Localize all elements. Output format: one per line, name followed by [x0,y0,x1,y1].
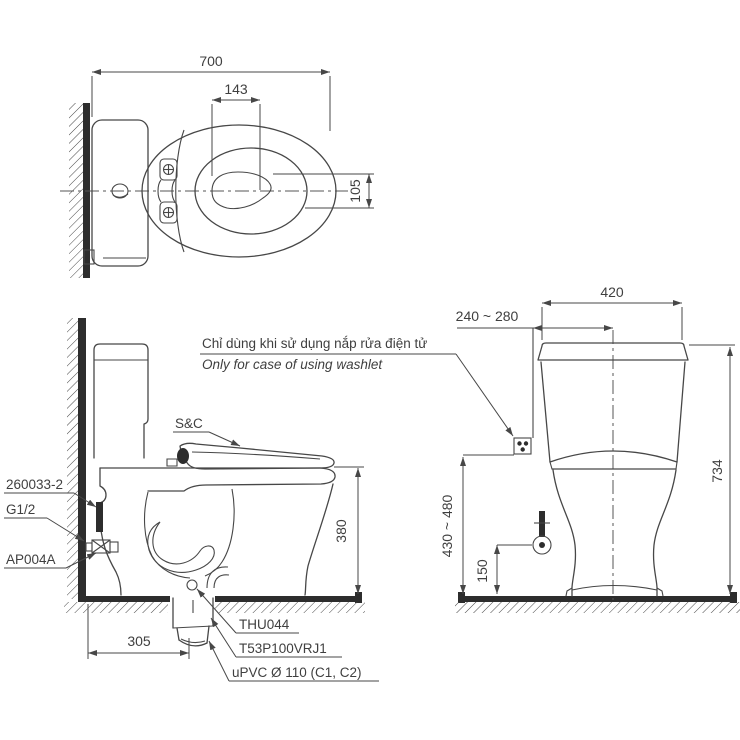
flange-text: THU044 [239,617,290,632]
washlet-note: Chỉ dùng khi sử dụng nắp rửa điện tử Onl… [200,336,513,436]
wall-hatch-side-view [67,318,86,599]
dim-outlet-offset: 240 ~ 280 [456,308,613,328]
supply-valve-front-view [533,511,551,554]
drain-pipe-side-view [173,598,213,646]
label-seat-cover: S&C [173,416,240,446]
top-view: 700 143 105 [60,53,374,278]
washlet-outlet-box [466,328,533,455]
dim-420-label: 420 [600,284,624,300]
front-view: 420 240 ~ 280 734 430 ~ 480 150 [439,284,740,613]
water-surface-outline [212,172,271,209]
dim-143-label: 143 [224,81,248,97]
pedestal-front-view [553,470,676,596]
joint-text: T53P100VRJ1 [239,641,327,656]
floor-front-view [455,592,740,613]
dim-valve-height: 150 [474,545,532,594]
seat-label-text: S&C [175,416,203,431]
dim-overall-depth: 700 [92,53,330,131]
dim-305-label: 305 [127,633,151,649]
trap-weir-section [148,522,215,572]
tank-top-view [84,120,148,266]
fan-icon [517,441,528,451]
drain-point-marker [187,580,197,590]
side-view: 380 305 S&C Chỉ dùng khi sử dụng nắp rửa… [4,318,513,681]
technical-drawing-canvas: 700 143 105 [0,0,740,740]
supply-valve-side-view [86,502,118,553]
washlet-seat-side-view [167,443,334,469]
dim-105-label: 105 [347,179,363,203]
floor-side-view [64,592,365,613]
dim-rim-height: 380 [333,467,364,594]
dim-430-480-label: 430 ~ 480 [439,494,455,557]
tank-side-view [94,344,148,458]
note-vietnamese: Chỉ dùng khi sử dụng nắp rửa điện tử [202,336,427,351]
dim-150-label: 150 [474,559,490,583]
seat-hinge-knob [177,448,189,464]
dim-tank-width: 420 [542,284,682,340]
thread-size-text: G1/2 [6,502,35,517]
dim-380-label: 380 [333,519,349,543]
technical-drawing-page: 700 143 105 [0,0,740,740]
dim-240-280-label: 240 ~ 280 [456,308,519,324]
pipe-spec-text: uPVC Ø 110 (C1, C2) [232,665,362,680]
dim-outlet-height: 430 ~ 480 [439,455,466,594]
bowl-body-side-view [100,468,333,595]
dim-700-label: 700 [199,53,223,69]
dim-734-label: 734 [709,459,725,483]
stop-valve-text: AP004A [6,552,56,567]
dim-total-height: 734 [689,345,735,594]
note-english: Only for case of using washlet [202,357,383,372]
bowl-deck-side-view [100,468,335,491]
supply-part-text: 260033-2 [6,477,63,492]
